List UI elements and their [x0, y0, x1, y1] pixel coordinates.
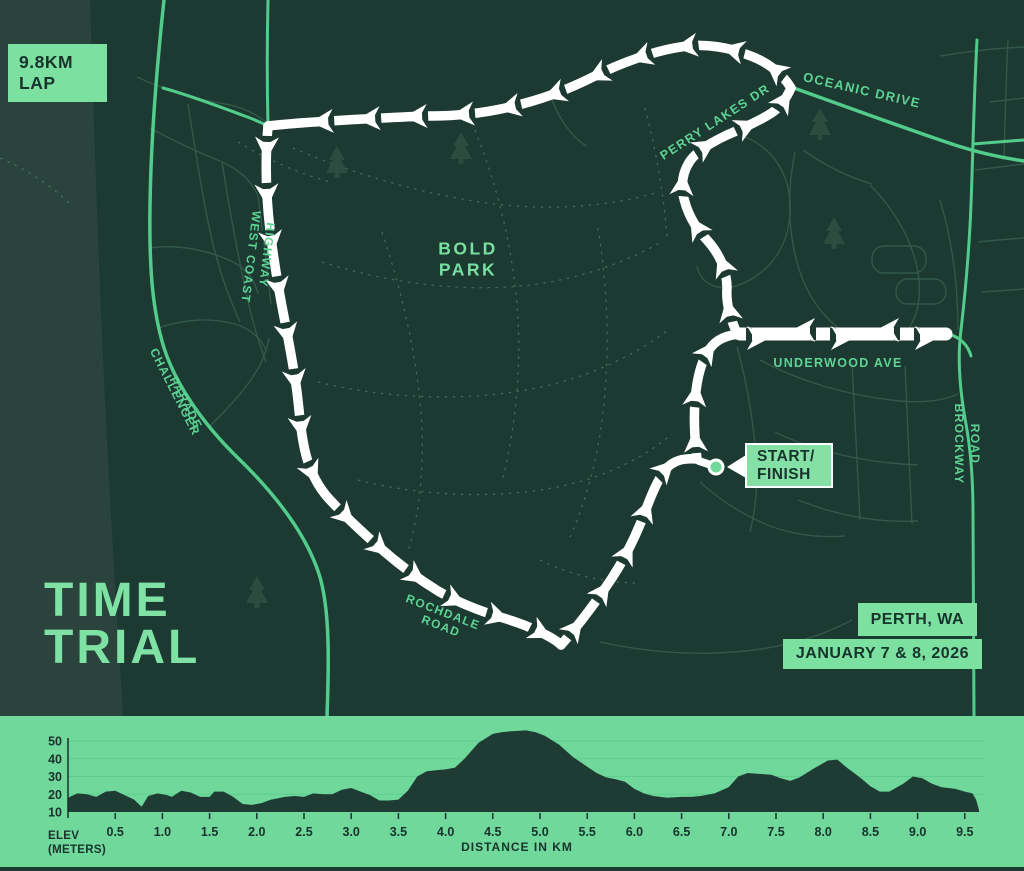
- lap-distance-badge: 9.8KM LAP: [8, 44, 107, 102]
- distance-axis-label: DISTANCE IN KM: [461, 840, 573, 854]
- elevation-axis-label: ELEV (METERS): [48, 830, 106, 858]
- bold-park-line1: BOLD: [438, 238, 498, 259]
- svg-text:8.5: 8.5: [862, 825, 879, 839]
- bottom-strip: [0, 867, 1024, 871]
- svg-text:10: 10: [48, 806, 62, 820]
- svg-text:1.5: 1.5: [201, 825, 218, 839]
- svg-text:50: 50: [48, 735, 62, 749]
- svg-text:2.0: 2.0: [248, 825, 265, 839]
- svg-text:0.5: 0.5: [107, 825, 124, 839]
- elevation-axis-label-line2: (METERS): [48, 844, 106, 858]
- lap-distance-unit: LAP: [19, 73, 56, 94]
- start-finish-line2: FINISH: [757, 466, 831, 483]
- event-title-line1: TIME: [44, 577, 200, 624]
- svg-text:6.5: 6.5: [673, 825, 690, 839]
- start-dot: [711, 462, 722, 473]
- start-finish-callout: START/ FINISH: [745, 443, 833, 488]
- bold-park-label: BOLD PARK: [438, 238, 498, 279]
- svg-text:2.5: 2.5: [295, 825, 312, 839]
- brockway-road-label-line2: ROAD: [968, 424, 982, 465]
- svg-text:40: 40: [48, 752, 62, 766]
- svg-text:7.0: 7.0: [720, 825, 737, 839]
- location-badge: PERTH, WA: [858, 603, 977, 636]
- svg-text:20: 20: [48, 788, 62, 802]
- svg-text:4.0: 4.0: [437, 825, 454, 839]
- svg-text:7.5: 7.5: [767, 825, 784, 839]
- west-coast-highway-north-road: [267, 0, 268, 126]
- event-title-line2: TRIAL: [44, 624, 200, 671]
- event-title: TIME TRIAL: [44, 577, 200, 671]
- underwood-ave-label: UNDERWOOD AVE: [773, 356, 902, 370]
- svg-text:5.0: 5.0: [531, 825, 548, 839]
- elevation-axis-label-line1: ELEV: [48, 830, 106, 844]
- lap-distance-value: 9.8KM: [19, 52, 73, 73]
- dates-badge: JANUARY 7 & 8, 2026: [783, 639, 982, 669]
- svg-text:4.5: 4.5: [484, 825, 501, 839]
- bold-park-line2: PARK: [438, 259, 498, 280]
- map-and-chart-graphic: 10203040500.51.01.52.02.53.03.54.04.55.0…: [0, 0, 1024, 871]
- svg-text:3.0: 3.0: [343, 825, 360, 839]
- start-finish-line1: START/: [757, 448, 831, 465]
- svg-text:6.0: 6.0: [626, 825, 643, 839]
- svg-text:8.0: 8.0: [815, 825, 832, 839]
- svg-text:9.0: 9.0: [909, 825, 926, 839]
- svg-text:5.5: 5.5: [579, 825, 596, 839]
- course-map-poster: 10203040500.51.01.52.02.53.03.54.04.55.0…: [0, 0, 1024, 871]
- svg-text:9.5: 9.5: [956, 825, 973, 839]
- svg-text:1.0: 1.0: [154, 825, 171, 839]
- svg-text:3.5: 3.5: [390, 825, 407, 839]
- brockway-road-label-line1: BROCKWAY: [952, 404, 966, 485]
- svg-text:30: 30: [48, 770, 62, 784]
